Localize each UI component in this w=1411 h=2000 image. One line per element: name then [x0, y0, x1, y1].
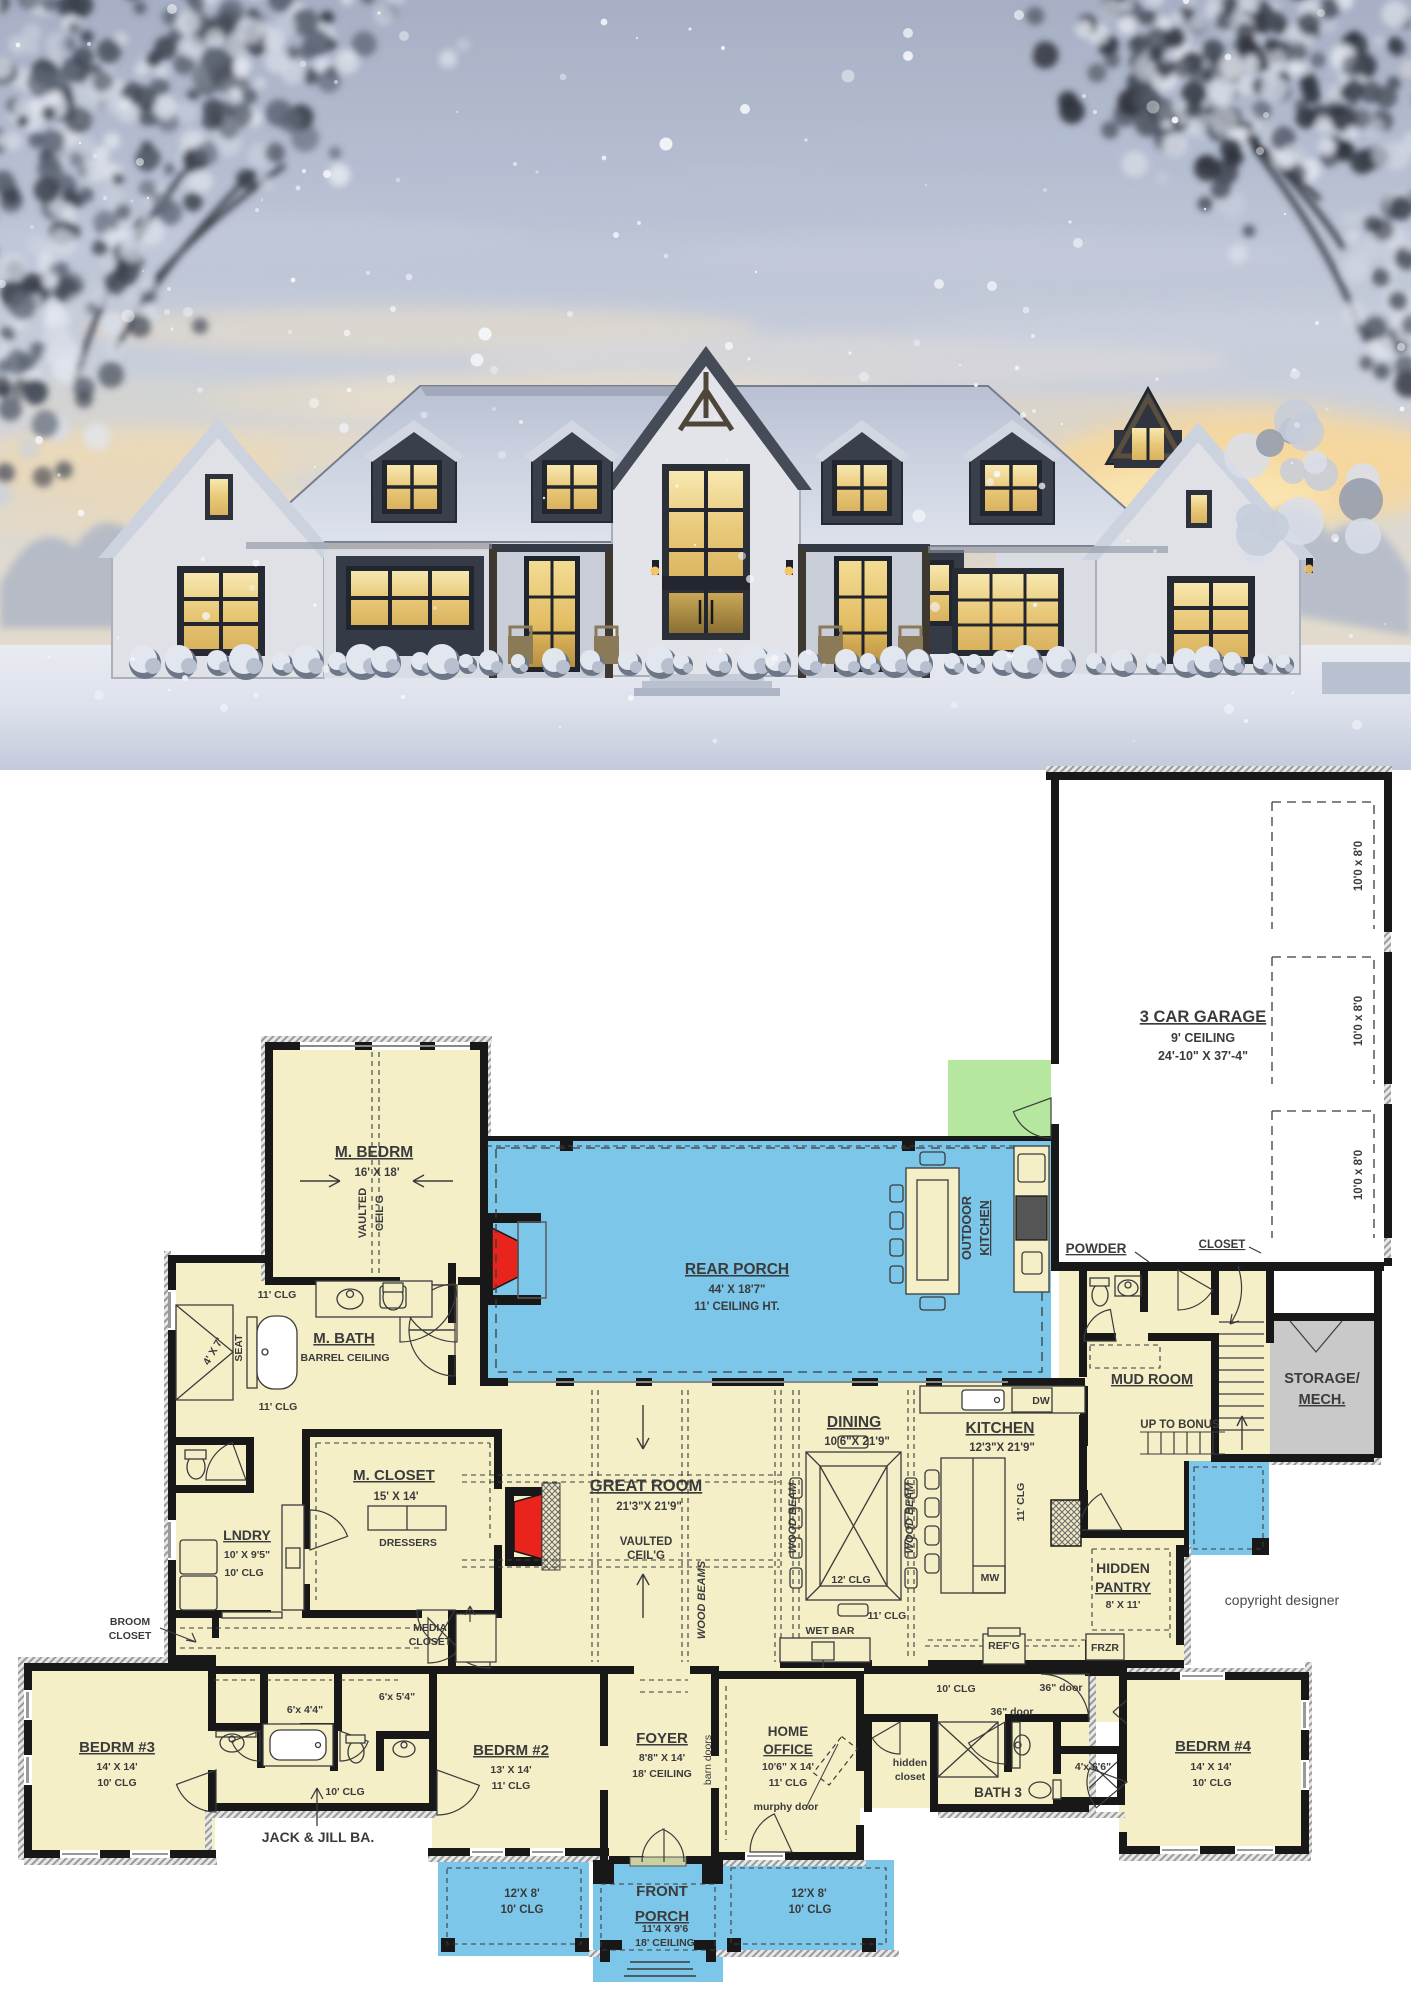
svg-text:UP TO BONUS: UP TO BONUS — [1140, 1419, 1220, 1431]
svg-text:10' CLG: 10' CLG — [1192, 1777, 1231, 1789]
svg-text:FRONT: FRONT — [636, 1883, 688, 1900]
svg-text:KITCHEN: KITCHEN — [978, 1200, 992, 1256]
svg-text:CLOSET: CLOSET — [109, 1630, 152, 1642]
svg-text:BROOM: BROOM — [110, 1616, 151, 1628]
svg-text:10' X 9'5": 10' X 9'5" — [224, 1549, 270, 1561]
svg-text:DW: DW — [1032, 1395, 1050, 1407]
svg-text:36" door: 36" door — [1040, 1682, 1083, 1694]
svg-text:WET BAR: WET BAR — [806, 1625, 855, 1637]
svg-text:8'8" X 14': 8'8" X 14' — [639, 1752, 685, 1764]
svg-text:18' CEILING: 18' CEILING — [632, 1768, 692, 1780]
svg-text:LNDRY: LNDRY — [223, 1527, 271, 1543]
svg-text:M. CLOSET: M. CLOSET — [353, 1467, 435, 1484]
svg-text:CEIL'G: CEIL'G — [627, 1550, 665, 1562]
svg-text:JACK & JILL BA.: JACK & JILL BA. — [262, 1829, 375, 1845]
svg-text:10' CLG: 10' CLG — [224, 1567, 263, 1579]
svg-text:14' X 14': 14' X 14' — [96, 1761, 137, 1773]
svg-text:WOOD BEAMS: WOOD BEAMS — [696, 1560, 708, 1639]
svg-text:BARREL CEILING: BARREL CEILING — [300, 1352, 389, 1364]
svg-text:HOME: HOME — [768, 1724, 809, 1739]
svg-text:DINING: DINING — [827, 1414, 881, 1431]
svg-text:10' CLG: 10' CLG — [789, 1904, 832, 1916]
svg-text:POWDER: POWDER — [1066, 1241, 1127, 1256]
svg-text:MUD ROOM: MUD ROOM — [1111, 1372, 1193, 1388]
svg-text:BEDRM #2: BEDRM #2 — [473, 1742, 549, 1759]
svg-text:24'-10" X 37'-4": 24'-10" X 37'-4" — [1158, 1049, 1248, 1063]
svg-text:HIDDEN: HIDDEN — [1096, 1560, 1150, 1576]
svg-text:STORAGE/: STORAGE/ — [1284, 1371, 1359, 1387]
svg-text:3 CAR GARAGE: 3 CAR GARAGE — [1140, 1008, 1267, 1026]
svg-text:GREAT ROOM: GREAT ROOM — [590, 1477, 702, 1495]
svg-text:12'X 8': 12'X 8' — [791, 1888, 827, 1900]
svg-text:10' CLG: 10' CLG — [501, 1904, 544, 1916]
svg-text:36" door: 36" door — [991, 1706, 1034, 1718]
svg-text:10' CLG: 10' CLG — [936, 1683, 975, 1695]
svg-text:FRZR: FRZR — [1091, 1642, 1119, 1654]
svg-text:CLOSET: CLOSET — [1199, 1239, 1246, 1251]
svg-text:8' X 11': 8' X 11' — [1106, 1599, 1141, 1611]
svg-text:BEDRM #4: BEDRM #4 — [1175, 1738, 1252, 1755]
svg-text:6'x 4'4": 6'x 4'4" — [287, 1704, 323, 1716]
svg-text:M. BEDRM: M. BEDRM — [335, 1144, 413, 1161]
svg-text:SEAT: SEAT — [233, 1334, 245, 1362]
svg-text:PANTRY: PANTRY — [1095, 1579, 1152, 1595]
svg-text:11' CLG: 11' CLG — [492, 1780, 531, 1792]
svg-text:10' CLG: 10' CLG — [97, 1777, 136, 1789]
svg-text:CLOSET: CLOSET — [409, 1636, 452, 1648]
svg-text:M. BATH: M. BATH — [313, 1330, 374, 1347]
svg-text:15' X 14': 15' X 14' — [373, 1491, 418, 1503]
svg-text:BATH 3: BATH 3 — [974, 1785, 1022, 1800]
svg-text:44' X 18'7": 44' X 18'7" — [709, 1284, 766, 1296]
svg-text:VAULTED: VAULTED — [620, 1536, 673, 1548]
svg-text:11' CEILING HT.: 11' CEILING HT. — [694, 1301, 779, 1313]
svg-text:CEIL'G: CEIL'G — [374, 1195, 386, 1231]
svg-text:11'4 X 9'6: 11'4 X 9'6 — [642, 1923, 689, 1935]
svg-text:21'3"X 21'9": 21'3"X 21'9" — [616, 1501, 682, 1513]
svg-text:BEDRM #3: BEDRM #3 — [79, 1739, 155, 1756]
svg-text:MEDIA: MEDIA — [413, 1622, 447, 1634]
svg-text:copyright designer: copyright designer — [1225, 1592, 1340, 1608]
svg-text:murphy door: murphy door — [754, 1801, 819, 1813]
svg-text:closet: closet — [895, 1771, 926, 1783]
svg-text:REAR PORCH: REAR PORCH — [685, 1261, 789, 1278]
svg-text:hidden: hidden — [893, 1757, 927, 1769]
svg-text:OFFICE: OFFICE — [763, 1742, 813, 1757]
svg-text:OUTDOOR: OUTDOOR — [960, 1196, 974, 1260]
svg-text:KITCHEN: KITCHEN — [966, 1420, 1035, 1437]
svg-text:11' CLG: 11' CLG — [1015, 1483, 1027, 1522]
svg-text:VAULTED: VAULTED — [357, 1188, 369, 1238]
svg-text:6'x 5'4": 6'x 5'4" — [379, 1691, 415, 1703]
svg-text:11' CLG: 11' CLG — [258, 1289, 297, 1301]
svg-text:10'0 x 8'0: 10'0 x 8'0 — [1353, 841, 1365, 891]
svg-text:FOYER: FOYER — [636, 1730, 688, 1747]
svg-text:9' CEILING: 9' CEILING — [1171, 1031, 1235, 1045]
svg-text:10'6" X 14': 10'6" X 14' — [762, 1761, 814, 1773]
svg-text:WOOD BEAM: WOOD BEAM — [787, 1482, 799, 1554]
svg-text:10'0 x 8'0: 10'0 x 8'0 — [1353, 996, 1365, 1046]
svg-text:10'0 x 8'0: 10'0 x 8'0 — [1353, 1150, 1365, 1200]
svg-text:11' CLG: 11' CLG — [259, 1401, 298, 1413]
svg-text:16' X 18': 16' X 18' — [354, 1167, 399, 1179]
svg-text:12' CLG: 12' CLG — [831, 1574, 870, 1586]
svg-text:12'X 8': 12'X 8' — [504, 1888, 540, 1900]
svg-text:11' CLG: 11' CLG — [769, 1777, 808, 1789]
svg-text:10' CLG: 10' CLG — [325, 1786, 364, 1798]
svg-text:18' CEILING: 18' CEILING — [635, 1937, 695, 1949]
svg-text:barn doors: barn doors — [702, 1735, 714, 1785]
svg-text:MECH.: MECH. — [1299, 1392, 1346, 1408]
svg-text:MW: MW — [981, 1572, 1000, 1584]
svg-text:11' CLG: 11' CLG — [868, 1610, 907, 1622]
svg-text:WOOD BEAM: WOOD BEAM — [904, 1482, 916, 1554]
svg-text:14' X 14': 14' X 14' — [1190, 1761, 1231, 1773]
svg-text:REF'G: REF'G — [988, 1640, 1020, 1652]
svg-text:13' X 14': 13' X 14' — [490, 1764, 531, 1776]
svg-text:10'6"X 21'9": 10'6"X 21'9" — [824, 1436, 890, 1448]
svg-text:DRESSERS: DRESSERS — [379, 1537, 437, 1549]
svg-text:12'3"X 21'9": 12'3"X 21'9" — [969, 1442, 1035, 1454]
svg-text:4'x 6'6": 4'x 6'6" — [1075, 1761, 1111, 1773]
